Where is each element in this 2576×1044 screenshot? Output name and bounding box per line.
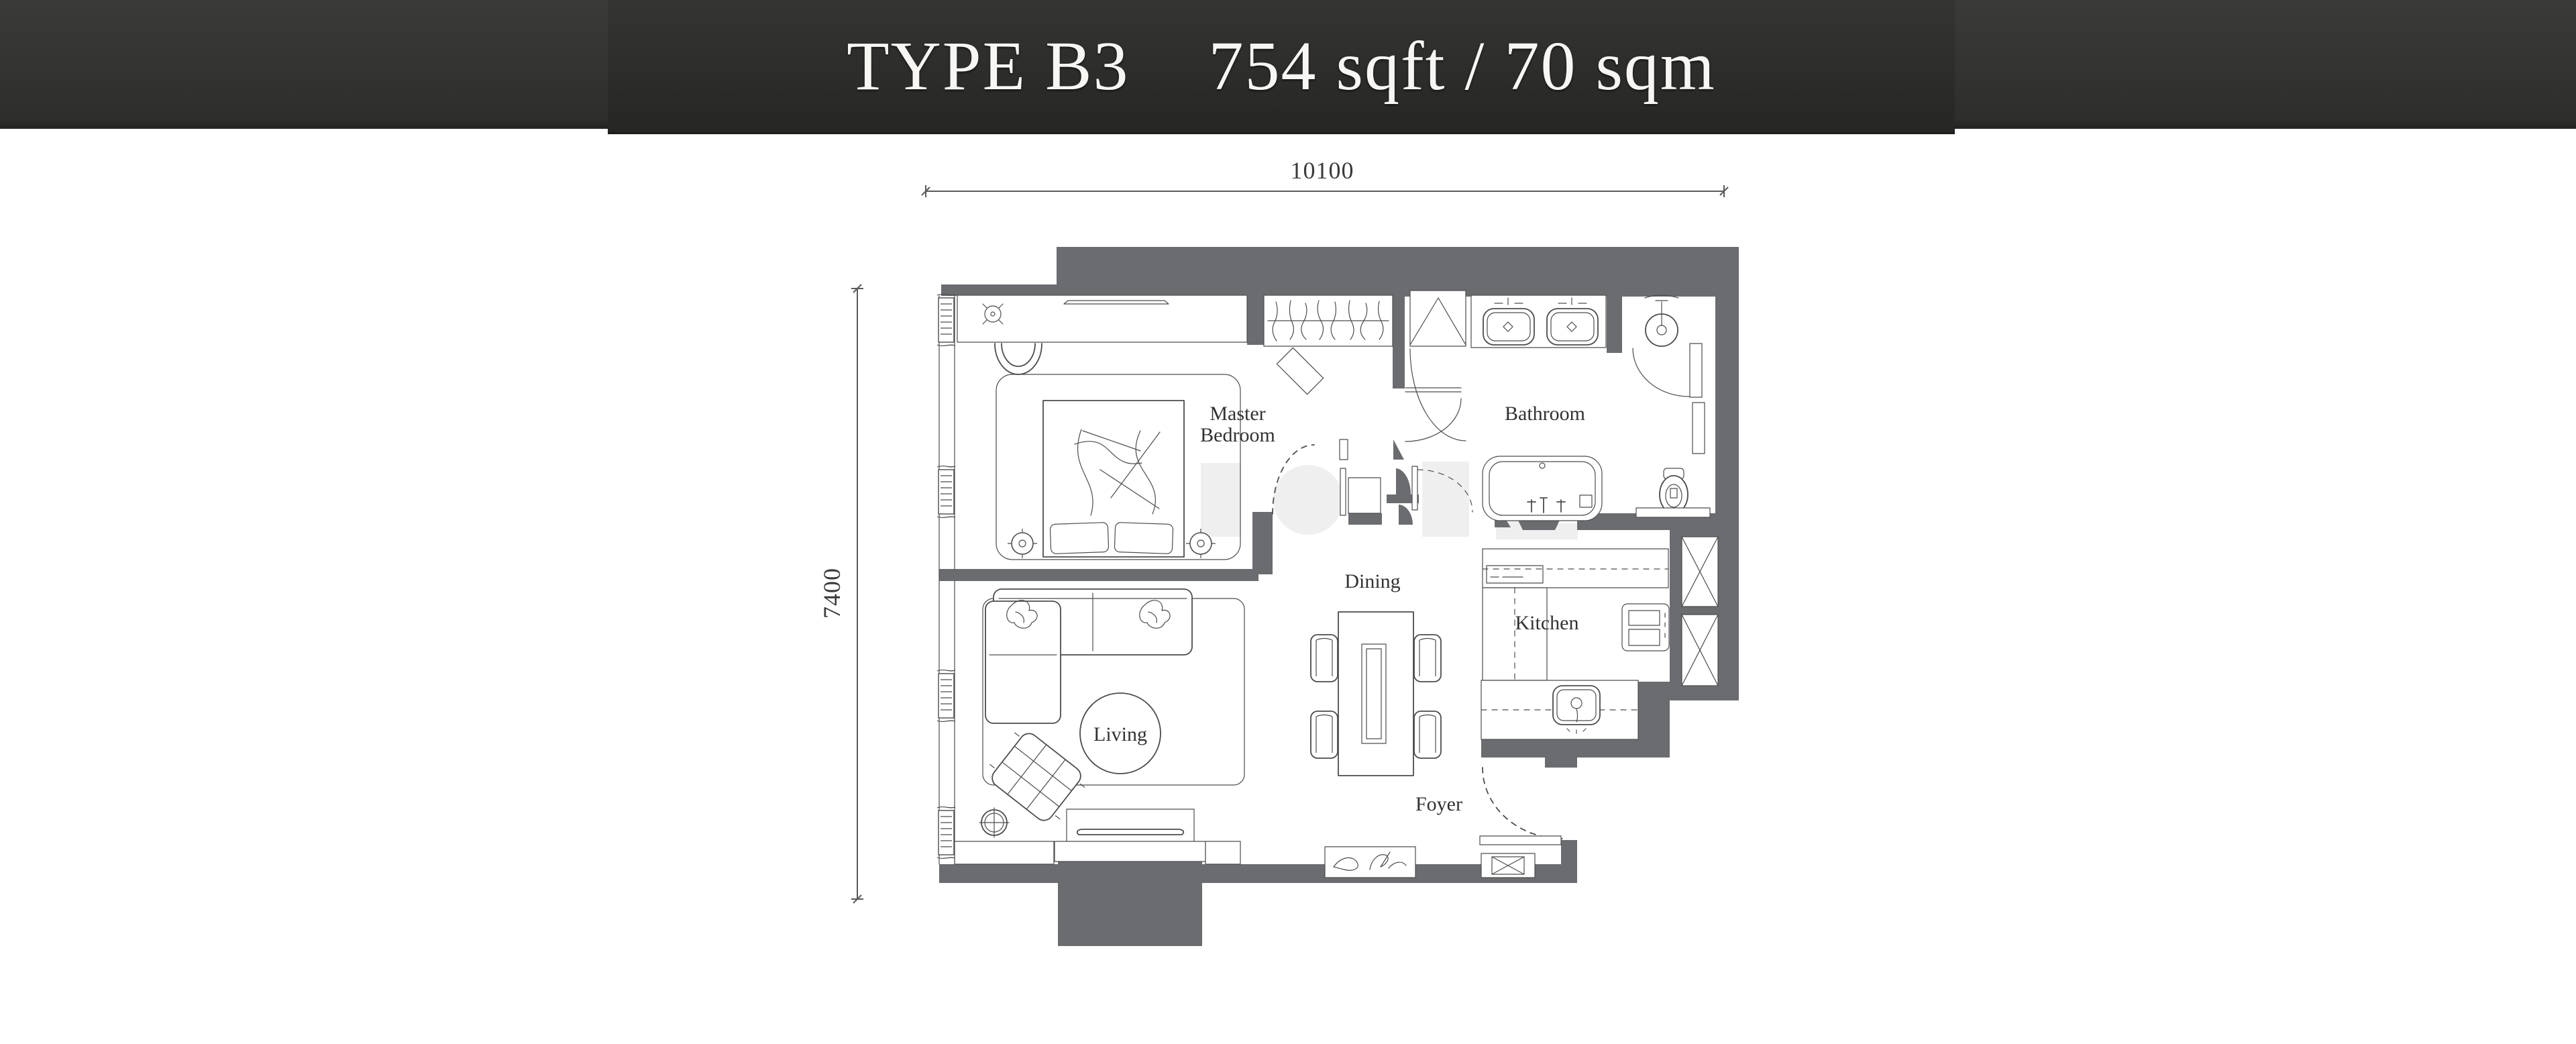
- shower-head-icon: [1645, 295, 1678, 346]
- planter-ledge: [955, 841, 1054, 864]
- wall-closet-divider: [1247, 295, 1264, 345]
- wall-top-left: [941, 284, 1061, 296]
- dimension-top: 10100: [922, 157, 1728, 197]
- wardrobe: [1264, 295, 1393, 346]
- dining-chair: [1414, 711, 1441, 758]
- room-label-dining: Dining: [1344, 570, 1400, 592]
- tv-console: [1067, 809, 1194, 844]
- wall-vanity-stub: [1607, 295, 1622, 353]
- floorplan-drawing: 10100 7400: [0, 0, 2576, 1044]
- bathtub: [1483, 456, 1602, 521]
- dining-chair: [1414, 635, 1441, 682]
- wall-window-pier-mid: [939, 569, 954, 581]
- planter-ledge: [1205, 841, 1240, 864]
- wall-entry-stub: [1545, 758, 1577, 768]
- dining-table: [1338, 612, 1413, 776]
- dining-chair: [1311, 711, 1338, 758]
- room-label-master-1: Master: [1210, 403, 1265, 425]
- nightstand-lamp-icon: [1008, 529, 1037, 558]
- foyer: Foyer: [1325, 768, 1562, 878]
- wall-bedroom-living: [943, 569, 1258, 581]
- living: Living: [979, 589, 1244, 844]
- window-frame-icon: [937, 295, 955, 346]
- room-label-living: Living: [1093, 723, 1147, 745]
- closet-door-arc: [995, 344, 1042, 374]
- entry-door-arc: [1483, 768, 1562, 839]
- wall-hall-stub-2: [1348, 513, 1382, 525]
- room-label-kitchen: Kitchen: [1515, 612, 1579, 634]
- bed: [1043, 401, 1184, 557]
- wall-top: [1057, 247, 1739, 297]
- foyer-cabinet: [1481, 853, 1535, 878]
- bathroom-door-arc: [1410, 349, 1466, 441]
- window-frame-icon: [937, 670, 955, 722]
- wall-right: [1715, 247, 1739, 534]
- dining: Dining: [1311, 570, 1441, 776]
- stove: [1622, 604, 1669, 651]
- wall-door-wedge-1: [1393, 439, 1404, 460]
- side-table: [979, 808, 1009, 837]
- window-frame-icon: [937, 466, 955, 518]
- decor-diamond: [1277, 348, 1323, 394]
- window-frame-icon: [937, 807, 955, 859]
- dimension-left: 7400: [818, 284, 863, 903]
- dining-chair: [1311, 635, 1338, 682]
- planter-ledge: [1055, 841, 1205, 862]
- wall-hall-vertical: [1252, 512, 1273, 574]
- balcony-block: [1058, 862, 1202, 946]
- door-leaf: [1412, 466, 1417, 510]
- toilet-icon: [1660, 468, 1688, 513]
- vanity: [1471, 295, 1606, 348]
- door-leaf: [1340, 468, 1346, 515]
- shower-glass-panel: [1693, 403, 1705, 454]
- pillow: [1114, 523, 1173, 554]
- wall-bathroom-left-upper: [1393, 295, 1405, 388]
- room-label-master-2: Bedroom: [1200, 424, 1275, 446]
- wall-window-pier-bottom: [939, 864, 954, 883]
- door-jamb: [1340, 439, 1348, 460]
- room-label-bathroom: Bathroom: [1505, 403, 1585, 425]
- hall-cabinet: [1348, 478, 1381, 513]
- room-label-foyer: Foyer: [1415, 793, 1462, 815]
- dimension-top-value: 10100: [1291, 157, 1354, 184]
- planters: [955, 841, 1240, 864]
- foyer-console: [1325, 847, 1415, 878]
- door-arc: [1405, 399, 1461, 441]
- sofa: [985, 589, 1192, 723]
- entry-door-leaf: [1480, 836, 1561, 845]
- kitchen-counter-top: [1483, 549, 1668, 588]
- wall-door-wedge-3: [1399, 505, 1413, 525]
- shower-door-arc: [1633, 348, 1689, 397]
- wall-kitchen-bottom: [1481, 739, 1670, 758]
- wall-door-wedge-2: [1396, 468, 1411, 494]
- closet: [957, 295, 1247, 342]
- shower-glass-panel: [1690, 344, 1702, 397]
- floorplan-page: TYPE B3 754 sqft / 70 sqm 10100: [0, 0, 2576, 1044]
- hall-shelf: [1405, 388, 1461, 392]
- pillow: [1050, 523, 1108, 554]
- dimension-left-value: 7400: [818, 568, 845, 619]
- toilet-ledge: [1636, 508, 1710, 517]
